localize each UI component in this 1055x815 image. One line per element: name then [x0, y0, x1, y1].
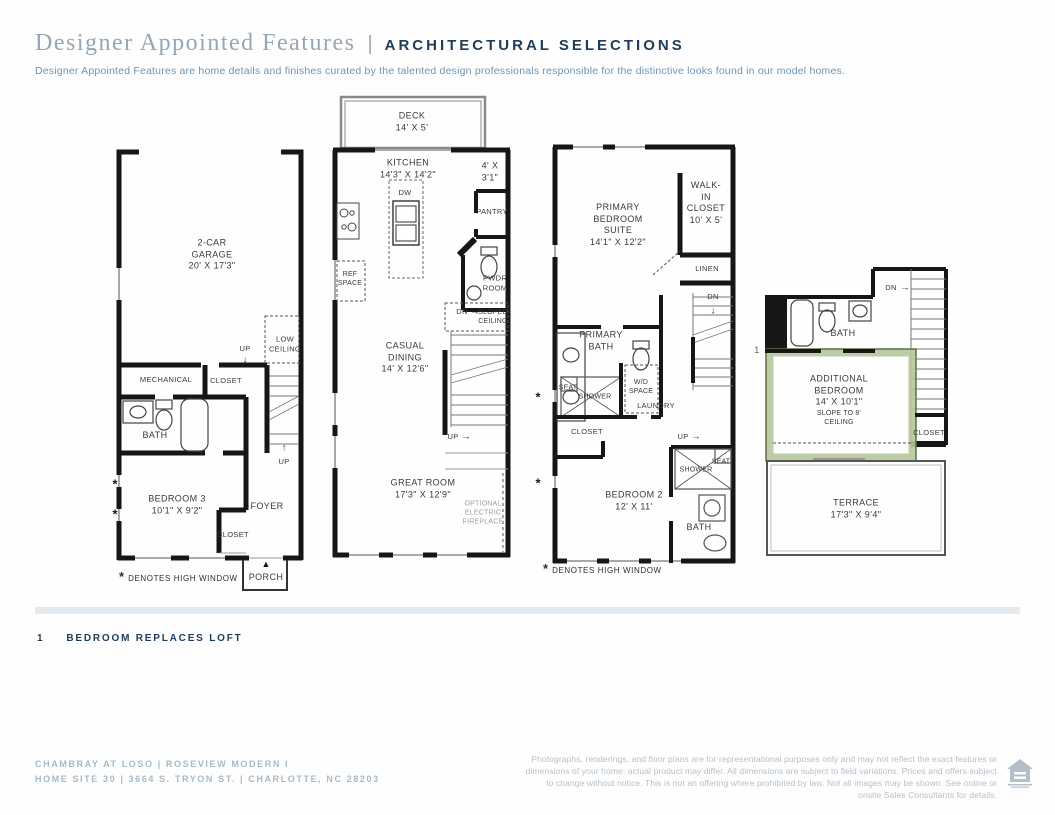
- toilet-icon: [704, 535, 726, 551]
- mechanical-label: MECHANICAL: [140, 375, 192, 385]
- floor4-bath: [765, 297, 873, 351]
- kitchen-label: KITCHEN 14'3" X 14'2": [380, 157, 436, 180]
- optional-fireplace-label: OPTIONAL ELECTRIC FIREPLACE: [463, 501, 504, 528]
- great-room-label: GREAT ROOM 17'3" X 12'9": [391, 477, 456, 500]
- high-window-note: * DENOTES HIGH WINDOW: [543, 564, 662, 575]
- option-footnote: 1 BEDROOM REPLACES LOFT: [37, 633, 243, 644]
- high-window-asterisk: *: [535, 390, 540, 405]
- section-title: ARCHITECTURAL SELECTIONS: [385, 37, 685, 54]
- closet-label: CLOSET: [571, 427, 603, 437]
- section-divider: [35, 607, 1020, 614]
- closet-label: CLOSET: [913, 428, 945, 438]
- closet-walls: [555, 417, 621, 457]
- legal-disclaimer: Photographs, renderings, and floor plans…: [525, 754, 997, 802]
- closet-top-label: CLOSET: [210, 376, 242, 386]
- brochure-page: Designer Appointed Features | ARCHITECTU…: [0, 0, 1055, 815]
- equal-housing-icon: [1005, 757, 1035, 789]
- garage-up-label: UP: [239, 344, 250, 354]
- asterisk-icon: *: [543, 564, 548, 574]
- sloped-ceiling-label: SLOPED CEILING: [478, 309, 508, 327]
- sink-icon: [699, 495, 725, 521]
- laundry-label: LAUNDRY: [637, 401, 675, 411]
- floor2-stairs: [445, 331, 508, 469]
- pantry-dims-label: 4' X 3'1": [480, 160, 500, 183]
- shower-label: SHOWER: [579, 394, 612, 403]
- seat-label: SEAT: [559, 385, 578, 394]
- floor1-stairs: [269, 376, 299, 444]
- seat-label: SEAT: [712, 459, 731, 468]
- laundry-room: [621, 295, 661, 417]
- foyer-up-label: UP: [278, 457, 289, 467]
- right-arrow-icon: →: [691, 432, 701, 443]
- sink-icon: [849, 301, 871, 321]
- pantry-label: PANTRY: [476, 207, 508, 217]
- foyer-label: FOYER: [250, 501, 283, 513]
- high-window-asterisk: *: [535, 476, 540, 491]
- bath-label: BATH: [831, 328, 856, 340]
- stairs-up-label: UP: [447, 432, 458, 442]
- sink-icon: [467, 286, 481, 300]
- toilet-icon: [156, 400, 172, 430]
- wd-space-label: W/D SPACE: [629, 379, 653, 397]
- bedroom2-label: BEDROOM 2 12' X 11': [605, 489, 663, 512]
- low-ceiling-label: LOW CEILING: [269, 334, 301, 353]
- porch-entry-icon: ▲: [262, 559, 271, 569]
- bath-label: BATH: [143, 430, 168, 442]
- walk-in-closet-label: WALK-IN CLOSET 10' X 5': [687, 180, 725, 226]
- high-window-note: * DENOTES HIGH WINDOW: [119, 572, 238, 583]
- floor1-walls: [118, 150, 303, 561]
- floorplan-third-floor: PRIMARY BEDROOM SUITE 14'1" X 12'2" WALK…: [553, 145, 735, 573]
- shower-label: SHOWER: [680, 467, 713, 476]
- primary-suite-label: PRIMARY BEDROOM SUITE 14'1" X 12'2": [590, 202, 646, 248]
- asterisk-icon: *: [119, 572, 124, 582]
- footnote-number: 1: [37, 633, 44, 644]
- powder-room-label: PWDR ROOM: [483, 273, 508, 292]
- title-separator: |: [367, 33, 372, 56]
- sink-icon: [123, 401, 153, 423]
- down-arrow-icon: ↓: [711, 306, 716, 317]
- up-arrow-icon: ↑: [282, 443, 287, 454]
- floorplan-second-floor: DECK 14' X 5' KITCHEN 14'3" X 14'2" 4' X…: [333, 95, 510, 563]
- casual-dining-label: CASUAL DINING 14' X 12'6": [381, 341, 428, 376]
- stairs-dn-label: DN: [456, 307, 467, 317]
- slope-ceiling-label: SLOPE TO 8' CEILING: [817, 410, 861, 428]
- additional-bedroom-label: ADDITIONAL BEDROOM 14' X 10'1": [810, 374, 868, 409]
- primary-bath-label: PRIMARY BATH: [579, 329, 623, 352]
- dishwasher-label: DW: [398, 188, 411, 198]
- terrace-label: TERRACE 17'3" X 9'4": [831, 497, 882, 520]
- stairs-dn-label: DN: [885, 283, 896, 293]
- toilet-icon: [481, 247, 497, 255]
- page-header: Designer Appointed Features | ARCHITECTU…: [35, 30, 685, 57]
- right-arrow-icon: →: [900, 283, 910, 294]
- floorplan-fourth-floor: DN → BATH 1 ADDITIONAL BEDROOM 14' X 10'…: [765, 267, 950, 559]
- deck-label: DECK 14' X 5': [396, 110, 429, 133]
- high-window-asterisk: *: [112, 507, 117, 522]
- community-address: CHAMBRAY AT LOSO | ROSEVIEW MODERN I HOM…: [35, 757, 380, 787]
- ref-space-label: REF SPACE: [338, 271, 362, 289]
- tub-icon: [791, 300, 813, 346]
- linen-label: LINEN: [695, 264, 719, 274]
- closet-bottom-label: CLOSET: [217, 530, 249, 540]
- garage-label: 2-CAR GARAGE 20' X 17'3": [188, 238, 235, 273]
- porch-label: PORCH: [249, 572, 284, 584]
- high-window-asterisk: *: [112, 477, 117, 492]
- down-arrow-icon: ↓: [243, 355, 248, 366]
- footnote-text: BEDROOM REPLACES LOFT: [66, 633, 242, 644]
- stairs-dn-label: DN: [707, 292, 718, 302]
- bedroom-door-swing: [653, 251, 680, 275]
- floorplan-first-floor: 2-CAR GARAGE 20' X 17'3" UP ↓ LOW CEILIN…: [115, 148, 305, 603]
- option-marker: 1: [754, 345, 759, 357]
- cooktop-icon: [337, 203, 359, 239]
- header-description: Designer Appointed Features are home det…: [35, 65, 845, 77]
- bedroom3-label: BEDROOM 3 10'1" X 9'2": [148, 493, 206, 516]
- tub-icon: [181, 399, 208, 451]
- stairs-up-label: UP: [677, 432, 688, 442]
- page-title: Designer Appointed Features: [35, 30, 355, 57]
- bath-label: BATH: [687, 522, 712, 534]
- right-arrow-icon: →: [461, 432, 471, 443]
